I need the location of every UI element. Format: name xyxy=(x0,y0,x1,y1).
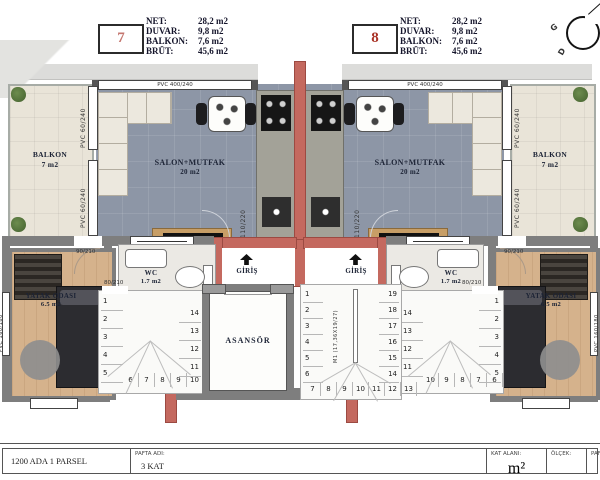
dining-table xyxy=(356,96,394,132)
title-block-paf-cell: PAF xyxy=(587,449,597,473)
window-balcony-right-upper xyxy=(502,86,512,150)
entry-arrow-icon xyxy=(240,254,253,265)
sofa xyxy=(98,92,128,196)
stair-step-number: 12 xyxy=(179,341,201,359)
stair-steps: 12345 xyxy=(101,293,123,383)
door-label: 90/210 xyxy=(76,250,95,256)
stat-row: NET:28,2 m2 xyxy=(400,16,530,26)
parcel-text: 1200 ADA 1 PARSEL xyxy=(11,456,87,466)
stair-step-number: 2 xyxy=(101,311,123,329)
unit-8-stats: NET:28,2 m2 DUVAR:9,8 m2 BALKON:7,6 m2 B… xyxy=(400,16,530,56)
stair-step-number: 3 xyxy=(303,319,323,335)
window-label: PVC 60/240 xyxy=(80,168,87,228)
elevator-shaft: ASANSÖR xyxy=(202,284,294,398)
title-block: 1200 ADA 1 PARSEL PAFTA ADI: 3 KAT KAT A… xyxy=(0,443,600,478)
stat-value: 45,6 m2 xyxy=(452,46,482,56)
stair-steps: 12345 xyxy=(479,293,501,383)
room-area: 7 m2 xyxy=(12,160,88,170)
stat-row: NET:28,2 m2 xyxy=(146,16,276,26)
elevator-jamb xyxy=(202,284,226,294)
stat-row: BALKON:7,6 m2 xyxy=(400,36,530,46)
stair-step-number: 4 xyxy=(479,347,501,365)
stat-label: DUVAR: xyxy=(146,26,198,36)
unit-8-number-box: 8 xyxy=(352,24,398,54)
room-area: 20 m2 xyxy=(350,168,470,177)
stair-step-number: 13 xyxy=(401,382,417,396)
stair-unit-left: 12345 14131211 678910 xyxy=(98,290,204,394)
room-area: 7 m2 xyxy=(512,160,588,170)
stair-steps: 78910111213 xyxy=(305,382,417,396)
stair-steps: 123456 xyxy=(303,287,323,383)
stair-step-number: 14 xyxy=(179,305,201,323)
dining-chair xyxy=(196,103,207,125)
window-balcony-left-upper xyxy=(88,86,98,150)
stair-step-number: 1 xyxy=(303,287,323,303)
stair-step-number: 1 xyxy=(479,293,501,311)
stair-rail xyxy=(353,289,358,363)
stair-step-number: 9 xyxy=(439,373,455,387)
party-wall xyxy=(295,62,305,240)
dining-table xyxy=(208,96,246,132)
elevator-cab: ASANSÖR xyxy=(209,291,287,391)
window-stub xyxy=(30,398,78,409)
room-name: SALON+MUTFAK xyxy=(350,158,470,168)
room-area: 6.5 m2 xyxy=(12,301,90,309)
stat-row: DUVAR:9,8 m2 xyxy=(400,26,530,36)
window-label: PVC 60/240 xyxy=(514,92,521,148)
door-gap xyxy=(498,236,526,246)
stair-step-number: 8 xyxy=(321,382,337,396)
stair-step-number: 5 xyxy=(101,365,123,383)
sink-icon xyxy=(311,197,340,227)
bedroom-right-label: YATAK ODASI 6.5 m2 xyxy=(512,292,590,310)
stair-steps: 14131211 xyxy=(179,305,201,377)
dining-chair xyxy=(393,103,404,125)
kat-alani-value: m² xyxy=(487,460,546,478)
compass-south-letter: D xyxy=(557,47,567,57)
stair-step-number: 13 xyxy=(179,323,201,341)
stair-step-number: 7 xyxy=(305,382,321,396)
room-name: YATAK ODASI xyxy=(512,292,590,301)
pafta-value: 3 KAT xyxy=(141,461,164,471)
sink-icon xyxy=(262,197,291,227)
door-label: 80/210 xyxy=(104,281,123,287)
stat-value: 7,6 m2 xyxy=(452,36,478,46)
stair-step-number: 12 xyxy=(401,341,423,359)
plant-icon xyxy=(11,217,26,232)
elevator-jamb xyxy=(270,284,294,294)
door-label: 80/210 xyxy=(462,281,481,287)
stair-fan-line xyxy=(321,362,356,383)
stair-step-number: 9 xyxy=(171,373,187,387)
stair-step-number: 7 xyxy=(139,373,155,387)
stove-icon xyxy=(261,95,291,131)
plant-icon xyxy=(573,217,588,232)
stat-label: NET: xyxy=(146,16,198,26)
entrance-wall xyxy=(304,238,388,248)
room-name: BALKON xyxy=(512,150,588,160)
kitchen-counter-left xyxy=(256,90,296,238)
stat-label: NET: xyxy=(400,16,452,26)
door-label: 90/210 xyxy=(504,250,523,256)
stair-step-number: 17 xyxy=(379,319,399,335)
title-block-table: 1200 ADA 1 PARSEL PAFTA ADI: 3 KAT KAT A… xyxy=(2,448,598,474)
plant-icon xyxy=(11,87,26,102)
stat-row: BRÜT:45,6 m2 xyxy=(400,46,530,56)
stat-value: 45,6 m2 xyxy=(198,46,228,56)
stat-row: BALKON:7,6 m2 xyxy=(146,36,276,46)
balcony-left-label: BALKON 7 m2 xyxy=(12,150,88,170)
stair-note: M1 (17,36X19/27) xyxy=(333,297,339,363)
window-balcony-left-lower xyxy=(88,160,98,236)
stair-steps: 191817161514 xyxy=(379,287,399,383)
bedroom-left-label: YATAK ODASI 6.5 m2 xyxy=(12,292,90,310)
kat-alani-label: KAT ALANI: xyxy=(491,451,521,457)
stat-value: 28,2 m2 xyxy=(198,16,228,26)
stat-row: BRÜT:45,6 m2 xyxy=(146,46,276,56)
stair-central: 123456 191817161514 78910111213 M1 (17,3… xyxy=(300,284,402,400)
stair-step-number: 14 xyxy=(401,305,423,323)
title-block-parcel-cell: 1200 ADA 1 PARSEL xyxy=(3,449,131,473)
window-stub xyxy=(522,398,570,409)
entry-arrow-icon xyxy=(349,254,362,265)
stair-step-number: 7 xyxy=(471,373,487,387)
paf-label: PAF xyxy=(591,451,600,457)
rug-icon xyxy=(20,340,60,380)
salon-right-label: SALON+MUTFAK 20 m2 xyxy=(350,158,470,177)
door-gap xyxy=(102,286,128,294)
window-balcony-right-lower xyxy=(502,160,512,236)
roof-eave-right xyxy=(342,64,592,80)
unit-7-number-box: 7 xyxy=(98,24,144,54)
stair-unit-right: 14131211 12345 109876 xyxy=(398,290,504,394)
stair-step-number: 12 xyxy=(385,382,401,396)
balcony-right-label: BALKON 7 m2 xyxy=(512,150,588,170)
floor-plan-sheet: 7 NET:28,2 m2 DUVAR:9,8 m2 BALKON:7,6 m2… xyxy=(0,0,600,480)
toilet-icon xyxy=(399,266,429,288)
wc-left-label: WC 1.7 m2 xyxy=(127,269,175,287)
stair-step-number: 2 xyxy=(303,303,323,319)
wall-post xyxy=(252,80,258,90)
window-top-right: PVC 400/240 xyxy=(348,80,502,90)
room-name: YATAK ODASI xyxy=(12,292,90,301)
entrance-wall xyxy=(212,238,296,248)
stair-step-number: 3 xyxy=(101,329,123,347)
vent-arrow-line xyxy=(137,241,187,242)
stat-label: DUVAR: xyxy=(400,26,452,36)
toilet-icon xyxy=(175,266,205,288)
room-area: 1.7 m2 xyxy=(127,278,175,286)
wc-sink-icon xyxy=(125,249,167,268)
door-gap xyxy=(472,286,498,294)
door-gap xyxy=(74,236,102,246)
window-label: PVC 160/180 xyxy=(0,296,4,352)
title-block-katalani-cell: KAT ALANI: m² xyxy=(487,449,547,473)
dining-chair xyxy=(245,103,256,125)
entry-right-label: GİRİŞ xyxy=(333,267,379,276)
stair-step-number: 3 xyxy=(479,329,501,347)
stair-step-number: 2 xyxy=(479,311,501,329)
room-area: 20 m2 xyxy=(130,168,250,177)
sofa xyxy=(472,92,502,196)
stair-step-number: 18 xyxy=(379,303,399,319)
elevator-door-line xyxy=(224,294,272,295)
title-block-olcek-cell: ÖLÇEK: xyxy=(547,449,587,473)
vent-arrow-line xyxy=(413,241,463,242)
stair-step-number: 1 xyxy=(101,293,123,311)
stat-label: BRÜT: xyxy=(146,46,198,56)
compass-gap xyxy=(585,10,600,24)
unit-7-stats: NET:28,2 m2 DUVAR:9,8 m2 BALKON:7,6 m2 B… xyxy=(146,16,276,56)
window-label: PVC 400/240 xyxy=(99,83,251,89)
room-name: WC xyxy=(427,269,475,278)
plant-icon xyxy=(573,87,588,102)
stat-value: 7,6 m2 xyxy=(198,36,224,46)
stair-step-number: 4 xyxy=(303,335,323,351)
rug-icon xyxy=(540,340,580,380)
compass-west-letter: G xyxy=(549,23,559,33)
stove-icon xyxy=(311,95,341,131)
wc-sink-icon xyxy=(437,249,479,268)
entry-left: GİRİŞ xyxy=(222,248,295,286)
stair-step-number: 15 xyxy=(379,351,399,367)
stair-step-number: 14 xyxy=(379,367,399,383)
stair-step-number: 19 xyxy=(379,287,399,303)
stat-label: BALKON: xyxy=(400,36,452,46)
room-name: WC xyxy=(127,269,175,278)
window-label: PVC 60/240 xyxy=(80,92,87,148)
window-label: PVC 60/240 xyxy=(514,168,521,228)
stair-step-number: 16 xyxy=(379,335,399,351)
olcek-label: ÖLÇEK: xyxy=(551,451,571,457)
stair-step-number: 6 xyxy=(303,367,323,383)
room-name: SALON+MUTFAK xyxy=(130,158,250,168)
dining-chair xyxy=(344,103,355,125)
stair-step-number: 11 xyxy=(401,359,423,377)
pafta-label: PAFTA ADI: xyxy=(135,451,165,457)
room-area: 6.5 m2 xyxy=(512,301,590,309)
stat-value: 28,2 m2 xyxy=(452,16,482,26)
elevator-label: ASANSÖR xyxy=(210,336,286,346)
stat-value: 9,8 m2 xyxy=(198,26,224,36)
stat-label: BALKON: xyxy=(146,36,198,46)
door-label: 110/220 xyxy=(240,198,247,238)
room-name: BALKON xyxy=(12,150,88,160)
window-top-left: PVC 400/240 xyxy=(98,80,252,90)
entry-right: GİRİŞ xyxy=(305,248,378,286)
title-block-pafta-cell: PAFTA ADI: 3 KAT xyxy=(131,449,487,473)
window-label: PVC 160/180 xyxy=(594,296,600,352)
stat-value: 9,8 m2 xyxy=(452,26,478,36)
stat-label: BRÜT: xyxy=(400,46,452,56)
entry-left-label: GİRİŞ xyxy=(224,267,270,276)
salon-left-label: SALON+MUTFAK 20 m2 xyxy=(130,158,250,177)
kitchen-counter-right xyxy=(304,90,344,238)
window-label: PVC 400/240 xyxy=(349,83,501,89)
stair-step-number: 13 xyxy=(401,323,423,341)
stat-row: DUVAR:9,8 m2 xyxy=(146,26,276,36)
door-label: 110/220 xyxy=(354,198,361,238)
stair-step-number: 4 xyxy=(101,347,123,365)
stair-step-number: 5 xyxy=(303,351,323,367)
